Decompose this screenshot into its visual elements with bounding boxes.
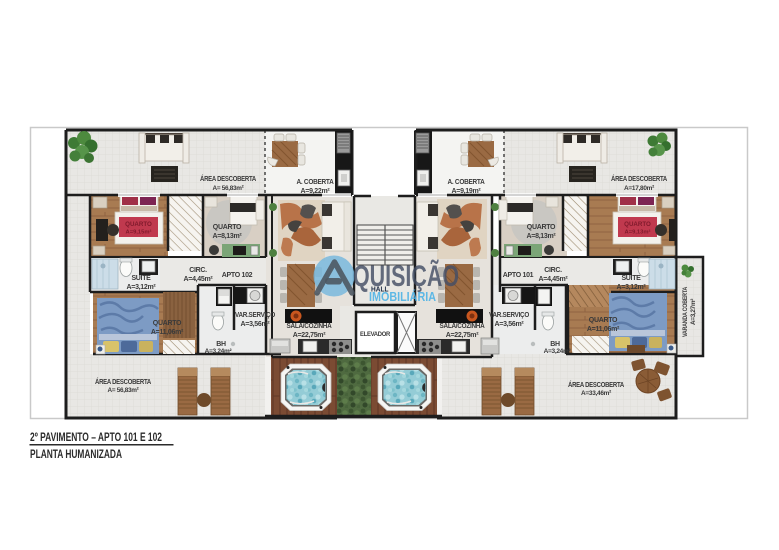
svg-text:ÁREA DESCOBERTA: ÁREA DESCOBERTA [200, 174, 256, 183]
svg-text:A=22,75m²: A=22,75m² [446, 332, 479, 339]
svg-text:A=11,06m²: A=11,06m² [151, 329, 184, 336]
svg-text:CIRC.: CIRC. [189, 267, 207, 274]
svg-text:ÁREA DESCOBERTA: ÁREA DESCOBERTA [611, 174, 667, 183]
svg-text:A=11,06m²: A=11,06m² [587, 326, 620, 333]
svg-text:SALA/COZINHA: SALA/COZINHA [440, 323, 485, 330]
svg-text:APTO 101: APTO 101 [503, 272, 534, 279]
svg-text:A=4,45m²: A=4,45m² [184, 276, 214, 283]
svg-text:IMOBILIÁRIA: IMOBILIÁRIA [369, 289, 436, 304]
svg-text:ÁREA DESCOBERTA: ÁREA DESCOBERTA [95, 377, 151, 386]
svg-text:BH: BH [216, 341, 226, 348]
svg-text:QUARTO: QUARTO [589, 317, 618, 324]
svg-text:BH: BH [550, 341, 560, 348]
svg-text:A=9,22m²: A=9,22m² [301, 188, 331, 195]
svg-text:QUARTO: QUARTO [153, 320, 182, 327]
svg-text:A=9,19m²: A=9,19m² [452, 188, 482, 195]
svg-text:A=8,13m²: A=8,13m² [527, 233, 557, 240]
svg-text:SUITE: SUITE [131, 275, 151, 282]
svg-text:QUARTO: QUARTO [213, 224, 242, 231]
svg-text:A. COBERTA: A. COBERTA [448, 179, 485, 186]
svg-text:VAR.SERVIÇO: VAR.SERVIÇO [235, 312, 276, 319]
svg-text:A=3,12m²: A=3,12m² [617, 284, 647, 291]
svg-text:A=9,15m²: A=9,15m² [126, 229, 152, 236]
svg-text:SALA/COZINHA: SALA/COZINHA [287, 323, 332, 330]
svg-text:2º PAVIMENTO – APTO 101 E 102: 2º PAVIMENTO – APTO 101 E 102 [30, 430, 162, 444]
svg-text:A=3,12m²: A=3,12m² [127, 284, 157, 291]
svg-text:A=3,24m²: A=3,24m² [544, 348, 572, 355]
svg-text:SUITE: SUITE [621, 275, 641, 282]
svg-text:ELEVADOR: ELEVADOR [360, 331, 391, 338]
svg-text:A=3,56m²: A=3,56m² [495, 321, 525, 328]
svg-text:A=4,45m²: A=4,45m² [539, 276, 569, 283]
svg-text:PLANTA HUMANIZADA: PLANTA HUMANIZADA [30, 447, 122, 461]
svg-text:A=3,24m²: A=3,24m² [205, 348, 233, 355]
svg-text:A=8,13m²: A=8,13m² [213, 233, 243, 240]
svg-text:A= 56,83m²: A= 56,83m² [213, 185, 245, 192]
svg-text:CIRC.: CIRC. [544, 267, 562, 274]
svg-text:QUARTO: QUARTO [624, 221, 651, 228]
svg-text:VARANDA COBERTA: VARANDA COBERTA [682, 286, 689, 337]
svg-text:VAR.SERVIÇO: VAR.SERVIÇO [489, 312, 530, 319]
svg-text:A=3,27m²: A=3,27m² [690, 299, 697, 325]
svg-text:ÁREA DESCOBERTA: ÁREA DESCOBERTA [568, 380, 624, 389]
svg-text:A=9,13m²: A=9,13m² [625, 229, 651, 236]
svg-text:A= 56,83m²: A= 56,83m² [108, 387, 140, 394]
svg-text:A=17,80m²: A=17,80m² [624, 185, 655, 192]
svg-text:QUARTO: QUARTO [125, 221, 152, 228]
svg-text:A. COBERTA: A. COBERTA [297, 179, 334, 186]
svg-text:A=33,46m²: A=33,46m² [581, 390, 612, 397]
svg-text:A=3,56m²: A=3,56m² [241, 321, 271, 328]
svg-text:QUARTO: QUARTO [527, 224, 556, 231]
svg-text:A=22,75m²: A=22,75m² [293, 332, 326, 339]
svg-text:QUISIÇÃO: QUISIÇÃO [353, 259, 459, 293]
svg-text:APTO 102: APTO 102 [222, 272, 253, 279]
